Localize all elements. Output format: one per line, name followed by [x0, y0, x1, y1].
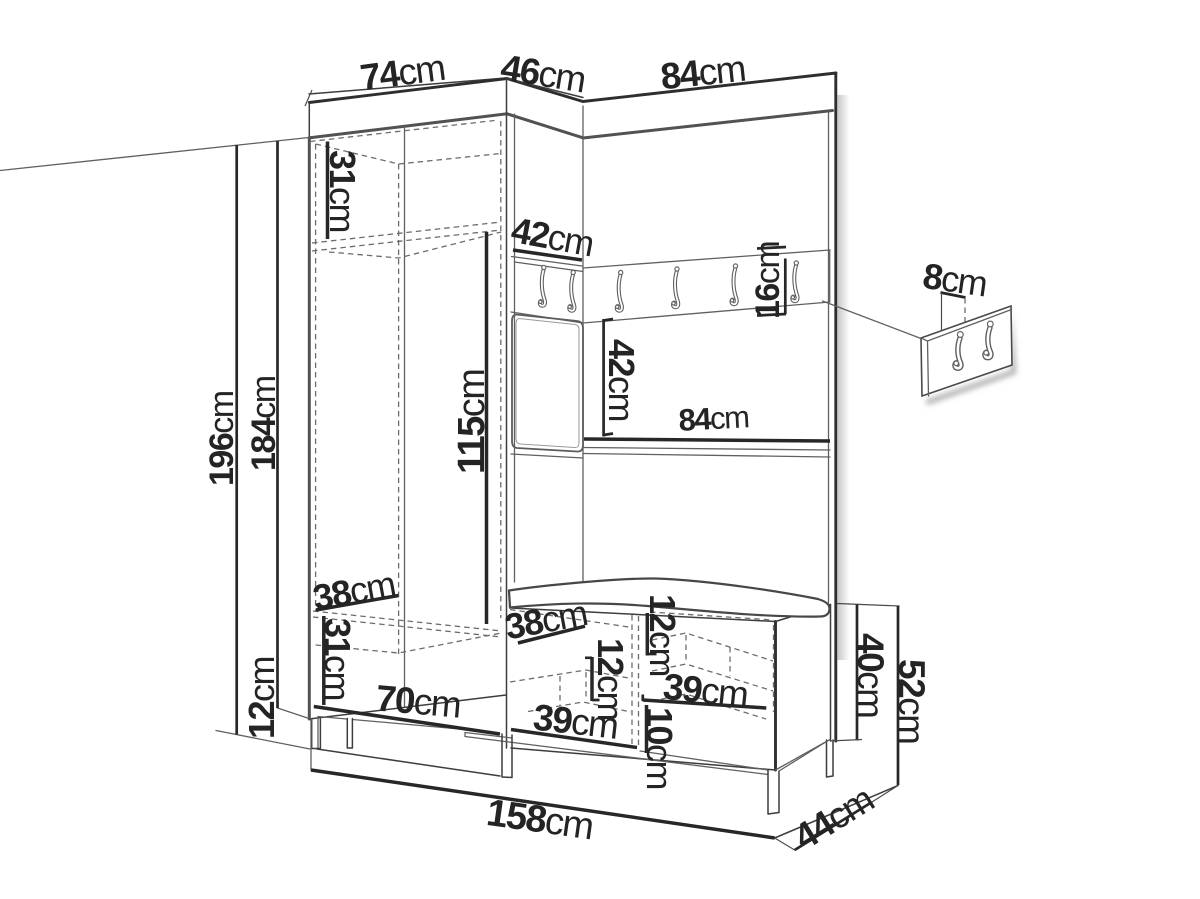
svg-text:115cm: 115cm: [451, 370, 493, 474]
svg-text:31cm: 31cm: [317, 618, 358, 700]
svg-text:84cm: 84cm: [659, 48, 747, 98]
svg-text:84cm: 84cm: [678, 399, 750, 438]
svg-text:42cm: 42cm: [601, 339, 642, 421]
svg-text:12cm: 12cm: [590, 638, 631, 720]
svg-text:12cm: 12cm: [642, 594, 683, 676]
svg-text:40cm: 40cm: [850, 633, 891, 717]
svg-text:196cm: 196cm: [203, 391, 241, 486]
svg-text:184cm: 184cm: [245, 376, 283, 471]
svg-text:52cm: 52cm: [891, 659, 932, 743]
svg-text:10cm: 10cm: [639, 707, 680, 789]
svg-text:70cm: 70cm: [374, 677, 462, 725]
svg-text:8cm: 8cm: [920, 255, 989, 304]
svg-text:31cm: 31cm: [322, 150, 363, 232]
svg-text:12cm: 12cm: [241, 657, 282, 739]
svg-text:16cm: 16cm: [749, 242, 787, 319]
